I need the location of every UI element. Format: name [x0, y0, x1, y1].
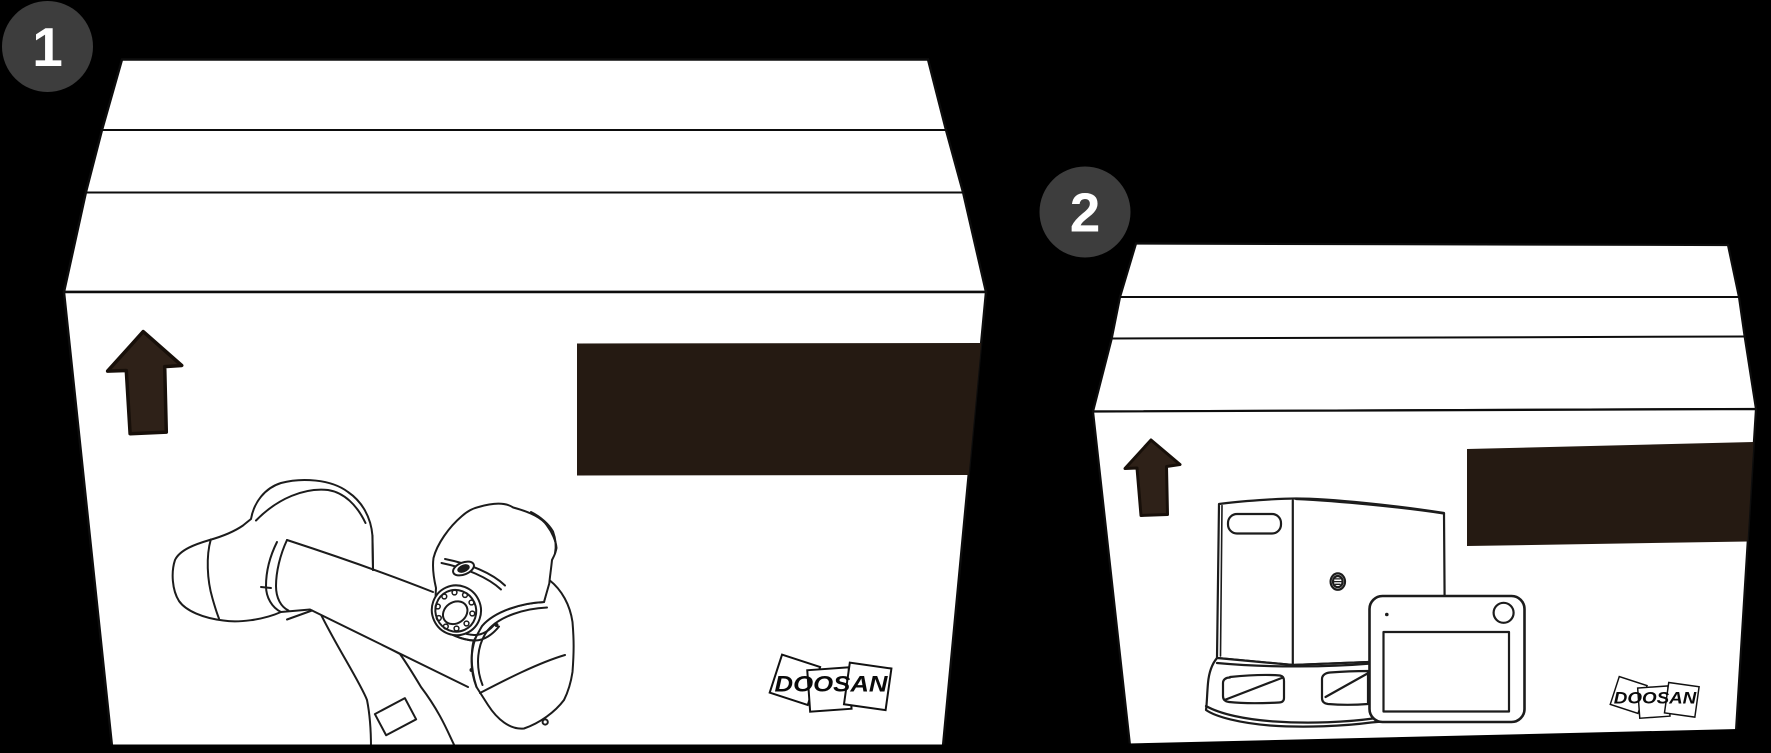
svg-text:1: 1 — [32, 16, 63, 78]
svg-text:2: 2 — [1070, 182, 1101, 244]
